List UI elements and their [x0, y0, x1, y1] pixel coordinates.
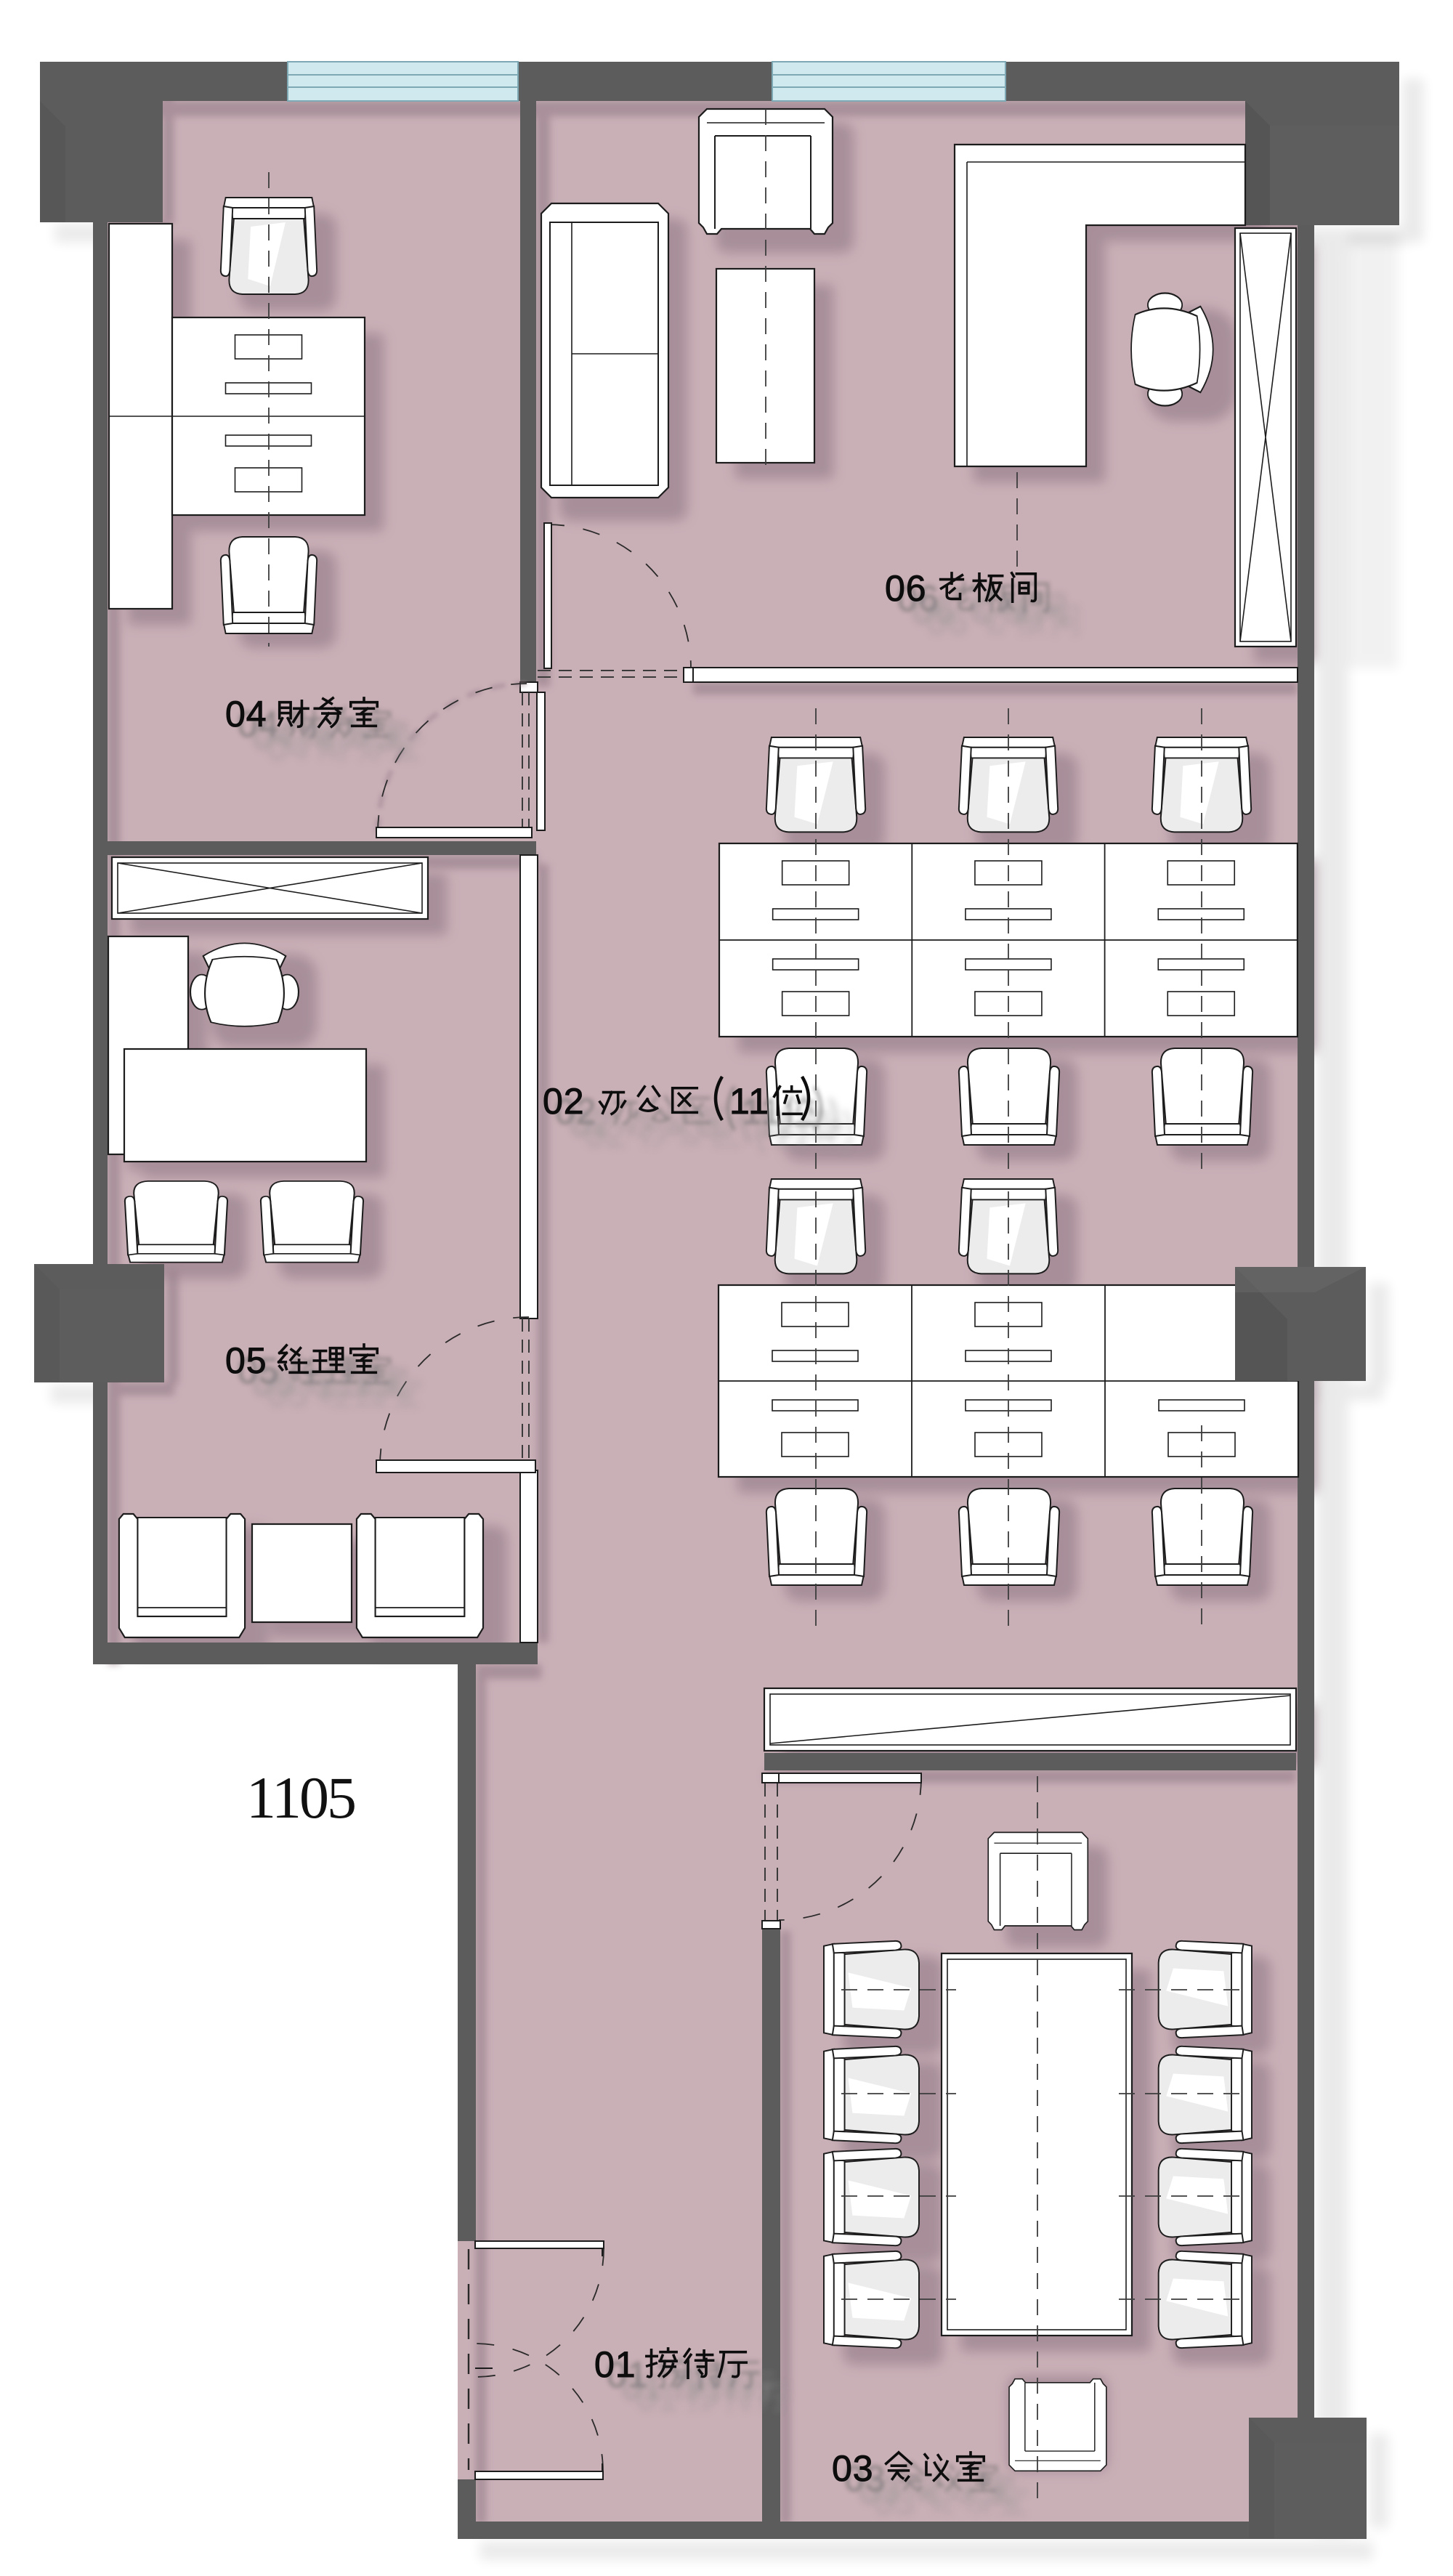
svg-text:11: 11: [729, 1081, 770, 1122]
svg-text:03: 03: [832, 2448, 874, 2489]
svg-text:1105: 1105: [246, 1765, 355, 1831]
svg-text:05: 05: [225, 1340, 267, 1381]
svg-text:01: 01: [594, 2344, 636, 2385]
svg-text:02: 02: [543, 1081, 585, 1122]
svg-text:06: 06: [885, 568, 927, 609]
svg-text:04: 04: [225, 694, 267, 734]
